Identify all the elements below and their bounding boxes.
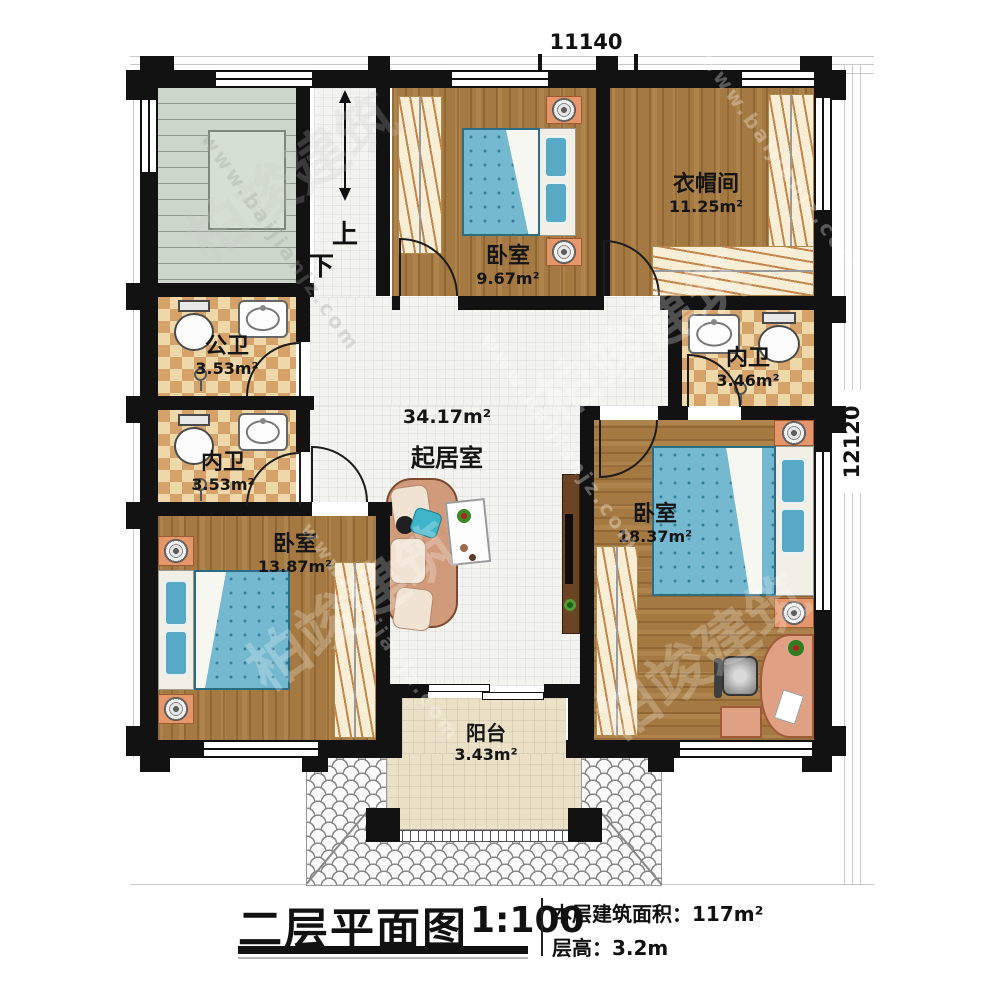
pillow xyxy=(780,458,806,504)
wall-stub xyxy=(126,726,140,756)
arrow-up-icon xyxy=(339,90,351,103)
room-area: 3.53m² xyxy=(153,475,293,494)
room-area: 3.53m² xyxy=(157,359,297,378)
room-name: 起居室 xyxy=(377,445,517,473)
closet-rack xyxy=(652,246,814,296)
wall xyxy=(140,70,158,758)
wall xyxy=(390,684,402,756)
title-underline xyxy=(238,946,528,954)
door-leaf xyxy=(311,446,313,502)
window xyxy=(680,740,812,758)
wall xyxy=(376,88,390,296)
wall-stub xyxy=(832,296,846,323)
room-name: 公卫 xyxy=(157,334,297,359)
wall xyxy=(296,297,310,342)
dimension-width: 11140 xyxy=(524,30,648,54)
nightstand xyxy=(774,420,814,446)
wall xyxy=(376,516,390,740)
wall-stub xyxy=(368,56,390,70)
pillow xyxy=(164,580,188,626)
door-leaf xyxy=(299,452,301,506)
pillow xyxy=(164,630,188,676)
window xyxy=(452,70,548,88)
lamp-icon xyxy=(552,98,576,122)
wardrobe xyxy=(334,562,376,738)
porch-column xyxy=(568,808,602,842)
wall xyxy=(392,296,400,310)
room-area: 3.43m² xyxy=(418,745,554,764)
room-name: 内卫 xyxy=(676,346,820,371)
floor-area-note: 本层建筑面积：117m² xyxy=(552,898,763,927)
stair-down-label: 下 xyxy=(304,246,338,283)
door-leaf xyxy=(599,420,601,478)
floor-height-note: 层高：3.2m xyxy=(552,932,668,961)
room-label-balcony: 阳台 3.43m² xyxy=(418,722,554,764)
nightstand xyxy=(546,96,582,124)
wall-stub xyxy=(832,70,846,100)
wall xyxy=(458,296,596,310)
room-label-bedroom-left: 卧室 13.87m² xyxy=(225,532,365,576)
wall xyxy=(660,296,832,310)
wardrobe xyxy=(398,96,442,254)
lamp-icon xyxy=(164,697,188,721)
wall xyxy=(568,684,580,756)
wall xyxy=(580,406,600,420)
sliding-door xyxy=(428,684,490,692)
wall-stub xyxy=(802,758,832,772)
porch-column xyxy=(366,808,400,842)
wall xyxy=(741,406,832,420)
lamp-icon xyxy=(164,539,188,563)
plant xyxy=(786,638,806,658)
window xyxy=(742,70,814,88)
room-name: 内卫 xyxy=(153,450,293,475)
sofa-cushion xyxy=(392,586,435,632)
dim-guide-line xyxy=(130,64,874,65)
wall xyxy=(296,410,310,452)
wall-stub xyxy=(832,406,846,433)
room-label-bedroom-top: 卧室 9.67m² xyxy=(438,244,578,288)
room-area: 3.46m² xyxy=(676,371,820,390)
toilet-tank xyxy=(178,300,210,312)
sink xyxy=(238,300,288,338)
room-area: 18.37m² xyxy=(585,527,725,546)
pillow xyxy=(780,508,806,554)
wall-stub xyxy=(800,56,832,70)
window xyxy=(216,70,312,88)
wall xyxy=(658,406,688,420)
wall-stub xyxy=(140,56,174,70)
wall-stub xyxy=(126,502,140,529)
door-leaf xyxy=(299,342,301,396)
room-area: 13.87m² xyxy=(225,557,365,576)
toilet-tank xyxy=(762,312,796,324)
wall-stub xyxy=(302,758,328,772)
room-label-bath-ensuite-right: 内卫 3.46m² xyxy=(676,346,820,390)
wall xyxy=(140,283,314,297)
stair-direction-line xyxy=(344,102,346,190)
window xyxy=(140,100,158,172)
room-area: 9.67m² xyxy=(438,269,578,288)
sink xyxy=(238,413,288,451)
title-divider xyxy=(541,898,543,956)
arrow-down-icon xyxy=(339,188,351,201)
window xyxy=(814,452,832,610)
wall-stub xyxy=(648,758,674,772)
lamp-icon xyxy=(782,601,806,625)
room-label-bedroom-right: 卧室 18.37m² xyxy=(585,502,725,546)
door-leaf xyxy=(603,240,605,296)
nightstand xyxy=(158,694,194,724)
room-label-closet: 衣帽间 11.25m² xyxy=(636,172,776,216)
wall xyxy=(368,502,392,516)
room-area: 11.25m² xyxy=(636,197,776,216)
plant xyxy=(563,598,577,612)
desk-return xyxy=(720,706,762,738)
pillow xyxy=(544,182,568,224)
dim-guide-line xyxy=(130,56,874,57)
sofa-cushion xyxy=(390,538,426,584)
title-underline-thin xyxy=(238,957,528,959)
door-leaf xyxy=(399,238,401,296)
room-name: 阳台 xyxy=(418,722,554,745)
toilet-tank xyxy=(178,414,210,426)
room-label-bath-ensuite-left: 内卫 3.53m² xyxy=(153,450,293,494)
wall-stub xyxy=(140,758,170,772)
sliding-door xyxy=(482,692,544,700)
wardrobe xyxy=(596,546,638,736)
hall-floor xyxy=(310,297,668,406)
nightstand xyxy=(774,598,814,628)
nightstand xyxy=(158,536,194,566)
stair-landing xyxy=(208,130,286,230)
wall-stub xyxy=(832,726,846,756)
cup xyxy=(460,544,468,552)
balcony-railing xyxy=(386,830,582,842)
wall xyxy=(296,506,310,516)
wall-stub xyxy=(126,283,140,310)
pillow xyxy=(544,136,568,178)
room-label-bath-public: 公卫 3.53m² xyxy=(157,334,297,378)
lamp-icon xyxy=(782,421,806,445)
tv xyxy=(565,514,573,584)
room-name: 卧室 xyxy=(225,532,365,557)
chair-back xyxy=(714,658,722,698)
window xyxy=(814,98,832,210)
wall-stub xyxy=(126,70,140,100)
wall-stub xyxy=(126,396,140,423)
cup xyxy=(469,554,476,561)
room-name: 衣帽间 xyxy=(636,172,776,197)
flowers xyxy=(456,508,472,524)
wall xyxy=(140,396,314,410)
room-area: 34.17m² xyxy=(377,406,517,429)
floor-plan-page: 11140 12120 xyxy=(0,0,1000,990)
wall-stub xyxy=(596,56,618,70)
room-name: 卧室 xyxy=(438,244,578,269)
window xyxy=(204,740,318,758)
office-chair xyxy=(722,656,758,696)
wall xyxy=(596,296,604,310)
room-name: 卧室 xyxy=(585,502,725,527)
room-label-living: 34.17m² 起居室 xyxy=(377,406,517,472)
wall xyxy=(580,420,594,740)
